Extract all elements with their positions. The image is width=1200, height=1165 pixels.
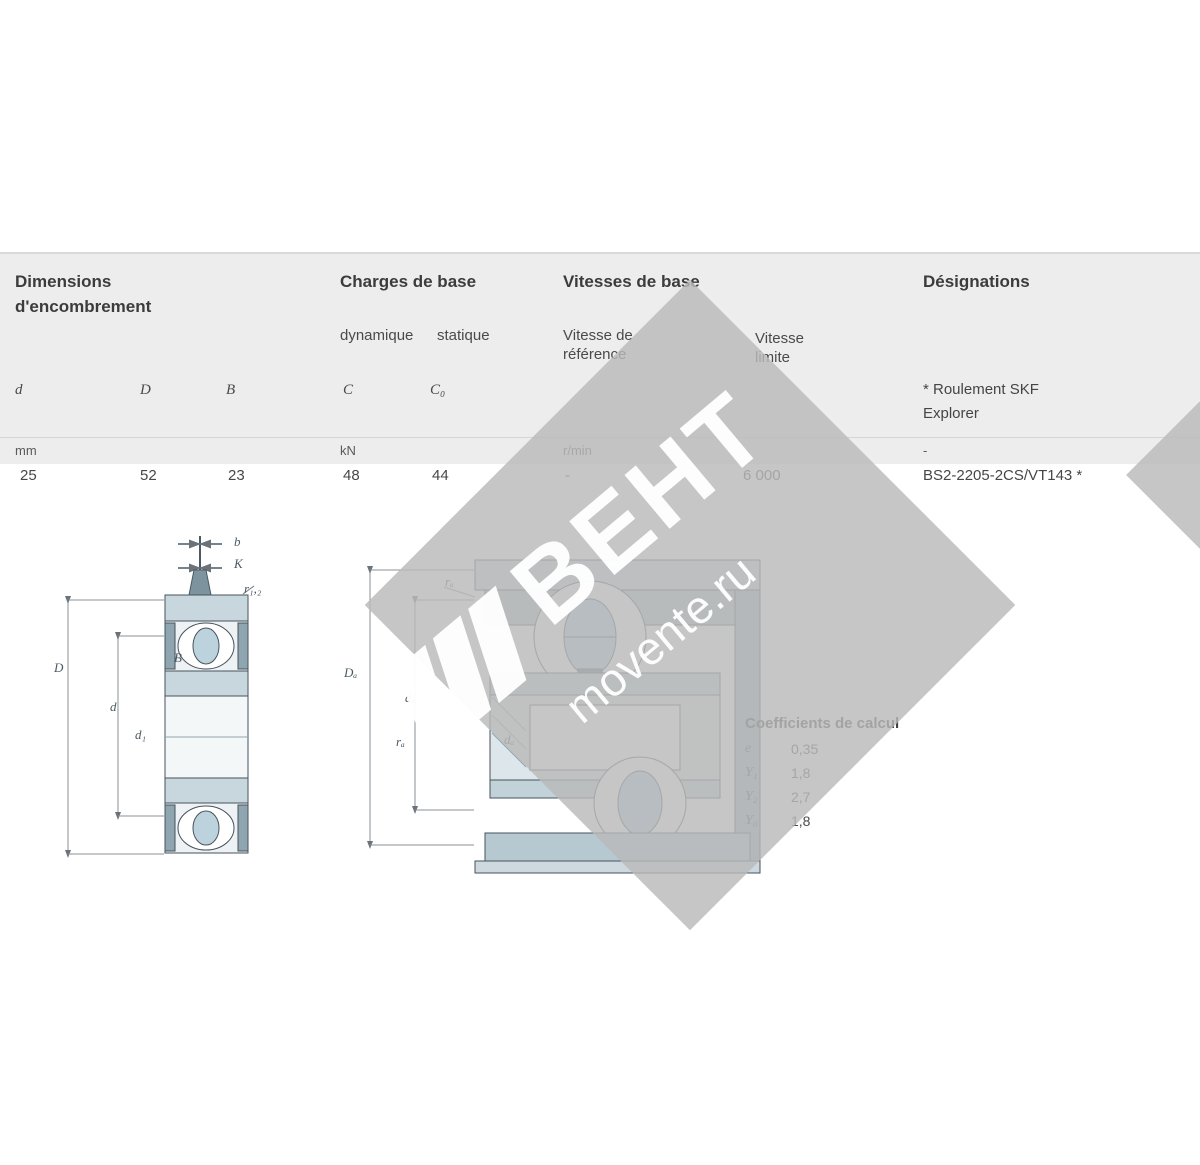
- symbol-D: D: [140, 382, 151, 399]
- left-bearing-drawing: [50, 528, 350, 868]
- dimension-label: K: [234, 556, 243, 572]
- dimension-label: d₁: [135, 727, 146, 743]
- unit-kn: kN: [340, 443, 356, 458]
- symbol-C: C: [343, 382, 353, 399]
- cell-dynamic-C: 48: [343, 467, 360, 484]
- dimension-label: r₁,₂: [244, 581, 261, 597]
- explorer-note-1: * Roulement SKF: [923, 381, 1039, 398]
- dimension-label: b: [234, 534, 241, 550]
- symbol-d: d: [15, 382, 23, 399]
- cell-designation: BS2-2205-2CS/VT143 *: [923, 467, 1082, 484]
- subheader-refspeed-1: Vitesse de: [563, 327, 633, 344]
- column-group-dimensions: Dimensions: [15, 272, 111, 292]
- dimension-label: rₐ: [396, 734, 405, 750]
- subheader-static: statique: [437, 327, 490, 344]
- dimension-label: d: [110, 699, 117, 715]
- unit-mm: mm: [15, 443, 37, 458]
- cell-width-B: 23: [228, 467, 245, 484]
- dimension-label: Dₐ: [344, 665, 357, 681]
- catalog-page: Dimensions d'encombrement Charges de bas…: [0, 0, 1200, 1165]
- cell-static-C0: 44: [432, 467, 449, 484]
- subheader-dynamic: dynamique: [340, 327, 413, 344]
- cell-outer-D: 52: [140, 467, 157, 484]
- column-group-loads: Charges de base: [340, 272, 476, 292]
- cell-bore-d: 25: [20, 467, 37, 484]
- column-group-designations: Désignations: [923, 272, 1030, 292]
- symbol-C0: C₀: [430, 382, 445, 399]
- dimension-label: D: [54, 660, 63, 676]
- symbol-B: B: [226, 382, 235, 399]
- column-group-dimensions-2: d'encombrement: [15, 297, 151, 317]
- unit-dash: -: [923, 443, 927, 458]
- explorer-note-2: Explorer: [923, 405, 979, 422]
- dimension-label: B: [174, 650, 182, 666]
